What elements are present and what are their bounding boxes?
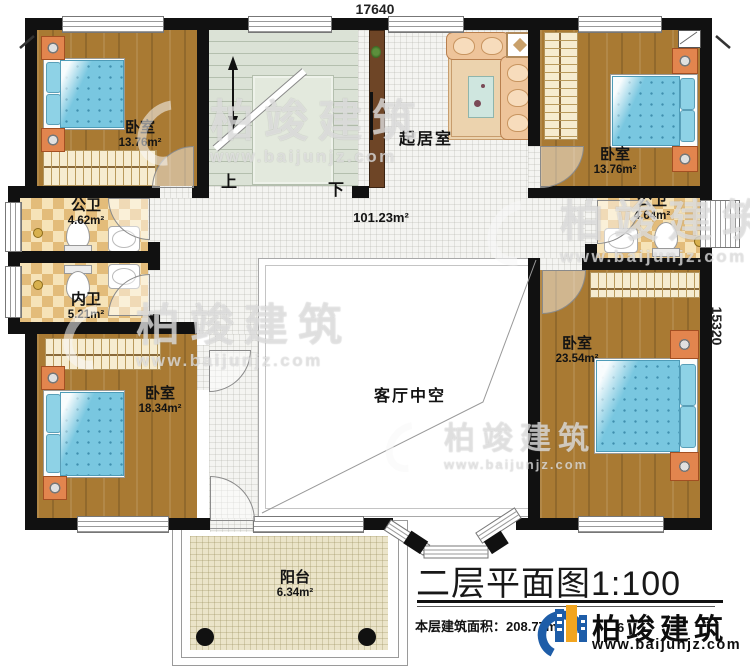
wall [700,18,712,200]
plan-title: 二层平面图1:100 [416,556,681,605]
window [248,16,332,33]
wall [148,314,160,334]
wall [528,258,540,518]
nightstand [670,330,699,359]
room-label-bath-private-left: 内卫 5.21m² [46,292,126,322]
room-name: 客厅中空 [358,388,462,406]
room-label-void: 客厅中空 [358,388,462,406]
wall [352,186,369,198]
door-threshold [528,146,540,188]
door-threshold [585,200,597,244]
wall [167,518,196,530]
room-area: 101.23m² [333,211,429,226]
wall [330,18,388,30]
room-name: 公卫 [46,198,126,215]
nightstand [41,366,65,390]
room-name: 卧室 [567,147,663,164]
wall [25,334,37,530]
closet [590,272,700,298]
nightstand [41,128,65,152]
coffee-table [468,76,494,118]
wall [148,242,160,270]
pillow [680,364,696,406]
pillow [680,110,695,142]
flower-decor [474,100,481,107]
wall [516,518,578,530]
sofa-cushion [481,37,503,55]
sofa-cushion [507,114,529,132]
room-area: 4.64m² [612,210,692,223]
side-table-decor [513,38,527,52]
pillow [46,434,61,473]
window [77,516,169,533]
door-threshold [540,258,582,270]
window [578,516,664,533]
wall [662,518,712,530]
wall [8,251,148,263]
room-label-balcony: 阳台 6.34m² [247,570,343,600]
sofa-cushion [507,89,529,107]
window [388,16,464,33]
nightstand [670,452,699,481]
dimension-right: 15320 [709,291,725,361]
room-label-bath-public-left: 公卫 4.62m² [46,198,126,228]
room-name: 阳台 [247,570,343,587]
wall [582,258,712,270]
pillow [680,406,696,448]
wall [462,18,578,30]
toilet-tank [652,248,680,257]
nightstand [43,476,67,500]
stair-up-label: 上 [221,168,237,192]
towel-ring [33,228,43,238]
room-area: 6.34m² [247,587,343,600]
room-name: 公卫 [612,193,692,210]
sofa [446,32,510,60]
pillow [46,94,61,125]
plan-title-scale: 1:100 [591,565,681,603]
stair-down-label: 下 [328,176,344,200]
nightstand [672,146,698,172]
floor-plan-canvas: 17640 15320 卧室 13.76m² 公卫 4.62m² 内卫 5.21… [0,0,750,669]
mattress [596,360,680,452]
mattress [612,76,680,146]
room-name: 内卫 [46,292,126,309]
room-name: 起居室 [378,131,474,149]
plant [371,46,381,58]
brand-logo-icon [536,602,592,660]
window [5,202,22,252]
pillow [680,78,695,110]
mattress [60,60,124,128]
wall [700,246,712,530]
wall [197,18,209,198]
wall [25,18,37,196]
window [700,200,740,248]
nightstand [672,48,698,74]
sofa-cushion [453,37,475,55]
room-area: 23.54m² [529,353,625,366]
window [62,16,164,33]
pillow [46,62,61,93]
plan-title-text: 二层平面图 [416,565,591,603]
room-label-bedroom-top-left: 卧室 13.76m² [92,120,188,150]
room-label-bedroom-bottom-right: 卧室 23.54m² [529,336,625,366]
balcony-sliding-window [253,516,364,533]
floor-area-label: 本层建筑面积： [415,619,506,634]
wall [8,322,197,334]
tv [370,92,373,140]
balcony-column [196,628,214,646]
wall [362,518,393,530]
room-label-hall-area: 101.23m² [333,211,429,226]
flue-shaft [678,30,701,48]
room-label-bath-public-right: 公卫 4.64m² [612,193,692,223]
room-name: 卧室 [92,120,188,137]
sofa-cushion [507,64,529,82]
wall [37,518,77,530]
dimension-top: 17640 [340,1,410,17]
wall [585,244,597,258]
room-area: 13.76m² [92,137,188,150]
window [578,16,662,33]
living-void-inner-line [265,265,531,509]
wardrobe [544,32,578,140]
room-area: 13.76m² [567,164,663,177]
window [5,266,22,318]
room-name: 卧室 [529,336,625,353]
room-label-bedroom-bottom-left: 卧室 18.34m² [112,386,208,416]
brand-url: www.baijunjz.com [592,637,741,653]
door-threshold [197,345,209,390]
room-name: 卧室 [112,386,208,403]
towel-ring [33,280,43,290]
closet [43,150,157,186]
balcony-column [358,628,376,646]
wall [528,188,540,198]
pillow [46,394,61,433]
room-label-bedroom-top-right: 卧室 13.76m² [567,147,663,177]
room-label-living-room: 起居室 [378,131,474,149]
wall [196,518,210,530]
nightstand [41,36,65,60]
room-area: 4.62m² [46,215,126,228]
wall [528,18,540,146]
flower-decor [481,84,485,88]
stair-landing [253,76,333,184]
room-area: 5.21m² [46,309,126,322]
room-area: 18.34m² [112,403,208,416]
